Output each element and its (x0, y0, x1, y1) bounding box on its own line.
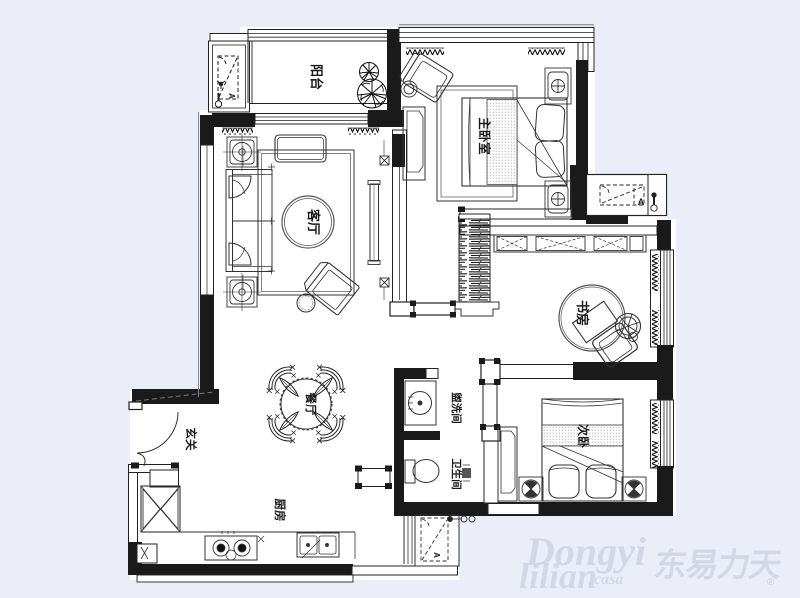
svg-text:A: A (227, 93, 236, 99)
svg-text:东易力天: 东易力天 (652, 546, 785, 583)
svg-text:®: ® (767, 577, 775, 588)
svg-text:客厅: 客厅 (306, 209, 321, 235)
svg-text:A: A (638, 197, 645, 207)
svg-text:lilian: lilian (519, 556, 597, 596)
svg-text:casa: casa (594, 571, 623, 588)
svg-text:书房: 书房 (575, 300, 590, 326)
svg-text:A: A (432, 552, 441, 558)
svg-text:厨房: 厨房 (273, 499, 287, 522)
svg-text:主卧室: 主卧室 (477, 117, 492, 155)
svg-text:玄关: 玄关 (184, 428, 198, 451)
svg-text:次卧: 次卧 (576, 424, 591, 448)
svg-text:卫生间: 卫生间 (450, 458, 463, 490)
svg-text:盥洗间: 盥洗间 (450, 392, 463, 424)
svg-text:阳台: 阳台 (309, 64, 324, 90)
svg-text:餐厅: 餐厅 (304, 392, 318, 416)
